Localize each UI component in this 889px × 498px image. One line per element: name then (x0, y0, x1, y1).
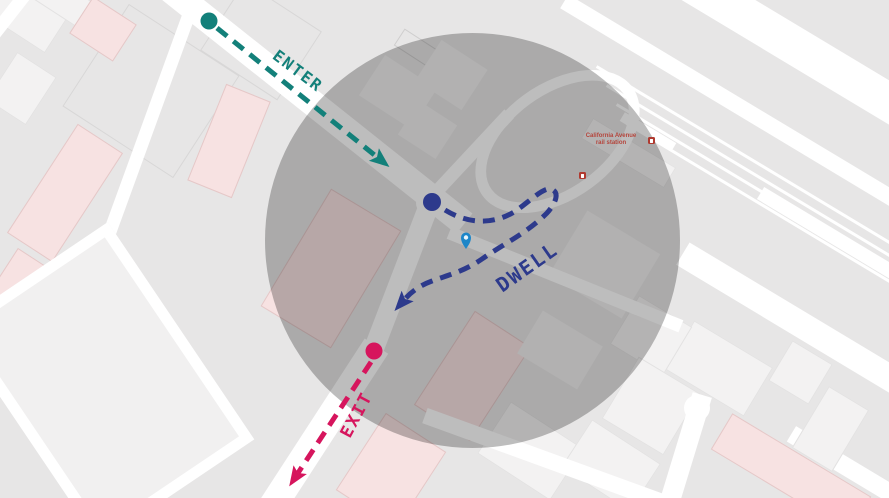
train-station-icon[interactable] (579, 172, 586, 179)
building (0, 52, 57, 125)
train-station-icon[interactable] (648, 137, 655, 144)
geofence-circle (265, 33, 680, 448)
train-glyph (581, 174, 584, 178)
station-label-line1: California Avenue (576, 133, 646, 140)
train-glyph (650, 139, 653, 143)
station-label: California Avenue rail station (576, 133, 646, 147)
road-dead-end-bulb (684, 395, 710, 421)
map-canvas: California Avenue rail station (0, 0, 889, 498)
station-label-line2: rail station (576, 140, 646, 147)
